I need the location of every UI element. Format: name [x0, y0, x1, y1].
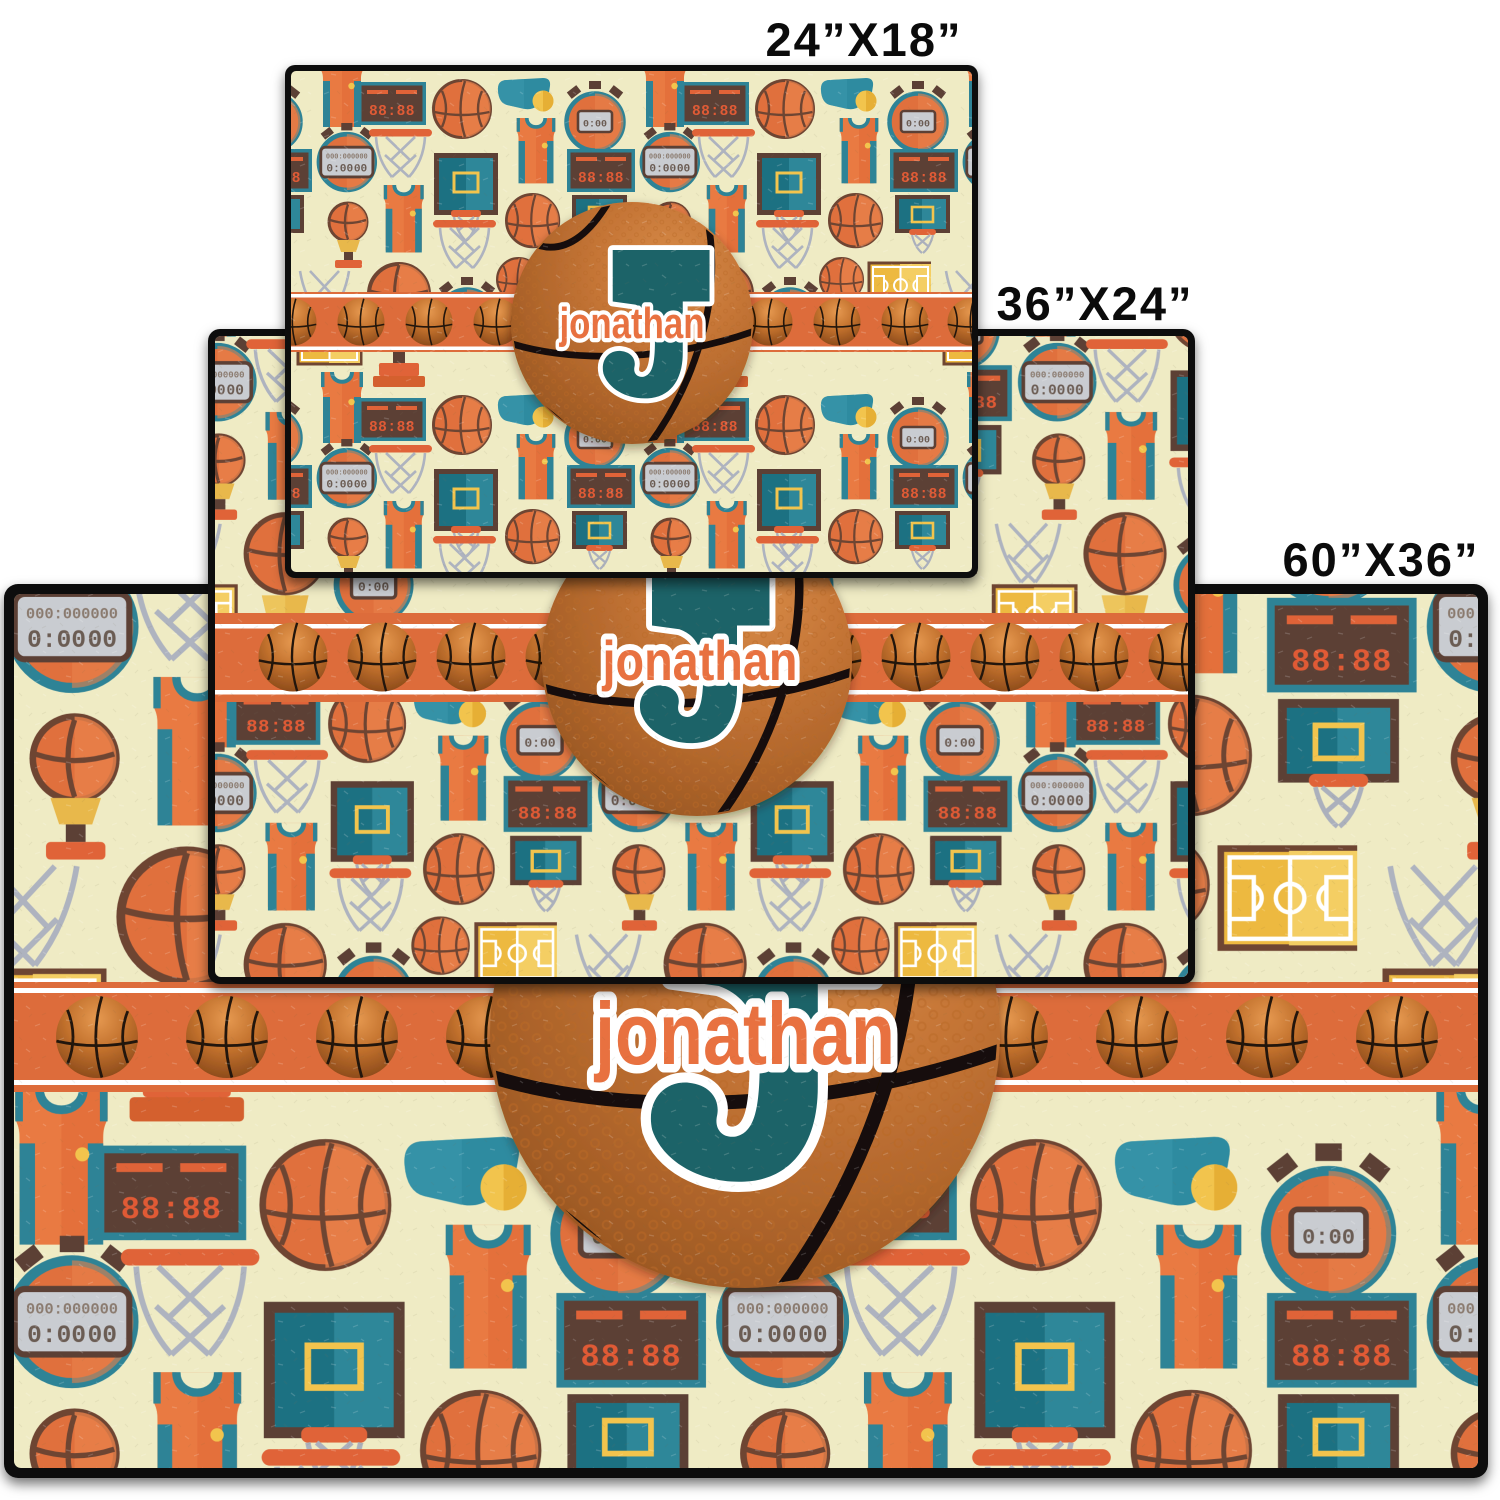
svg-text:36”X24”: 36”X24”: [997, 277, 1194, 330]
svg-text:24”X18”: 24”X18”: [766, 13, 963, 66]
svg-text:60”X36”: 60”X36”: [1283, 533, 1480, 586]
